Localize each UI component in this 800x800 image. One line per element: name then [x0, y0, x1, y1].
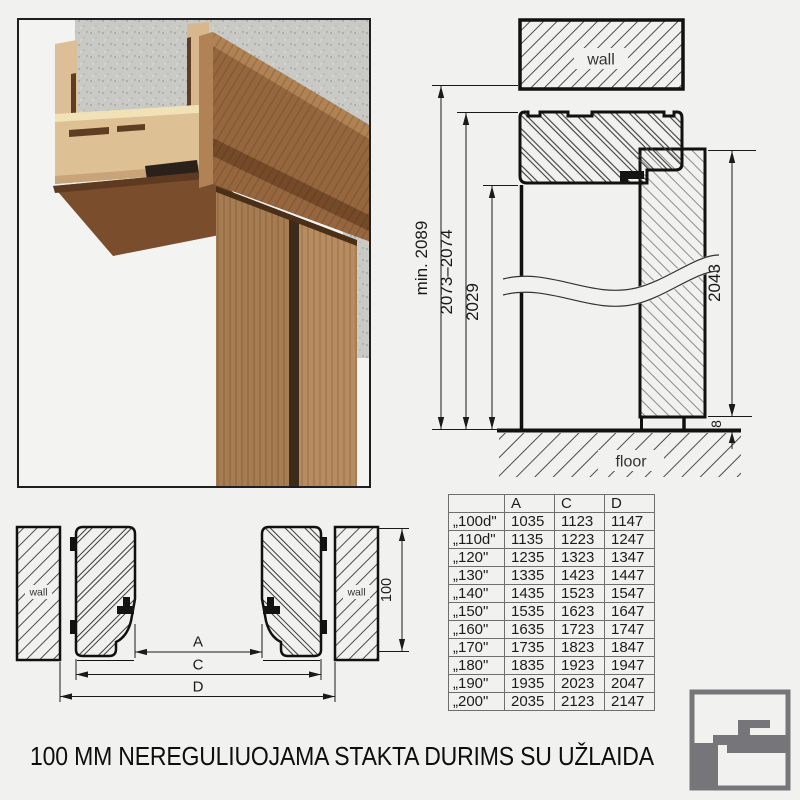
size-name-cell: „150" [449, 603, 505, 621]
dim-opening-height: 2029 [463, 283, 482, 321]
dim-floor-gap: 8 [708, 420, 724, 428]
table-header-cell: D [605, 495, 655, 513]
jamb-tab [70, 537, 76, 551]
dim-d-label: D [193, 678, 204, 695]
size-value-cell: 2023 [555, 675, 605, 693]
size-value-cell: 1923 [555, 657, 605, 675]
dim-total-height: min. 2089 [412, 221, 431, 296]
dim-door-height: 2043 [705, 264, 724, 302]
table-row: „140"143515231547 [449, 585, 655, 603]
table-header-cell [449, 495, 505, 513]
size-name-cell: „130" [449, 567, 505, 585]
size-value-cell: 1535 [505, 603, 555, 621]
table-row: „190"193520232047 [449, 675, 655, 693]
size-value-cell: 1223 [555, 531, 605, 549]
size-value-cell: 1135 [505, 531, 555, 549]
size-value-cell: 1847 [605, 639, 655, 657]
size-value-cell: 1435 [505, 585, 555, 603]
spec-sheet-drawing: wall floor [0, 0, 800, 800]
dim-c-label: C [193, 656, 204, 673]
page-title: 100 MM NEREGULIUOJAMA STAKTA DURIMS SU U… [30, 741, 654, 772]
mdf-slot [187, 37, 191, 106]
logo-profile-bar [713, 735, 790, 753]
size-name-cell: „120" [449, 549, 505, 567]
jamb-seal-cap [117, 606, 134, 614]
table-row: „180"183519231947 [449, 657, 655, 675]
table-row: „110d"113512231247 [449, 531, 655, 549]
jamb-grain [216, 186, 289, 488]
size-value-cell: 1335 [505, 567, 555, 585]
size-value-cell: 2035 [505, 693, 555, 711]
size-value-cell: 1747 [605, 621, 655, 639]
table-row: „170"173518231847 [449, 639, 655, 657]
size-name-cell: „180" [449, 657, 505, 675]
size-value-cell: 1247 [605, 531, 655, 549]
logo-profile-step [738, 720, 770, 736]
product-photo [17, 18, 371, 488]
size-table-body: „100d"103511231147„110d"113512231247„120… [449, 513, 655, 711]
vertical-section: wall floor [412, 20, 756, 477]
beam-end-grain [199, 32, 213, 188]
size-name-cell: „160" [449, 621, 505, 639]
head-seal [620, 171, 644, 179]
table-header-row: ACD [449, 495, 655, 513]
size-value-cell: 2147 [605, 693, 655, 711]
size-name-cell: „170" [449, 639, 505, 657]
floor-label: floor [615, 454, 647, 471]
size-value-cell: 1123 [555, 513, 605, 531]
size-value-cell: 1423 [555, 567, 605, 585]
frame-jamb-left [70, 527, 135, 661]
size-value-cell: 1835 [505, 657, 555, 675]
size-name-cell: „110d" [449, 531, 505, 549]
dim-frame-height: 2073–2074 [437, 229, 456, 314]
table-header-cell: A [505, 495, 555, 513]
logo-block [690, 743, 718, 790]
head-seal-lip [620, 178, 628, 184]
table-row: „120"123513231347 [449, 549, 655, 567]
size-value-cell: 1547 [605, 585, 655, 603]
horizontal-section: wall wall [17, 527, 409, 702]
dim-a-label: A [193, 633, 203, 650]
size-value-cell: 1735 [505, 639, 555, 657]
brand-logo [690, 692, 790, 790]
size-value-cell: 1147 [605, 513, 655, 531]
size-name-cell: „140" [449, 585, 505, 603]
size-value-cell: 1935 [505, 675, 555, 693]
size-name-cell: „200" [449, 693, 505, 711]
size-value-cell: 1947 [605, 657, 655, 675]
frame-jamb-right [262, 527, 327, 661]
table-row: „160"163517231747 [449, 621, 655, 639]
size-value-cell: 1323 [555, 549, 605, 567]
size-value-cell: 1623 [555, 603, 605, 621]
size-value-cell: 1635 [505, 621, 555, 639]
table-header-cell: C [555, 495, 605, 513]
size-table: ACD „100d"103511231147„110d"113512231247… [448, 494, 655, 711]
dim-depth-label: 100 [379, 578, 395, 602]
wall-label-right: wall [346, 587, 365, 599]
size-value-cell: 2047 [605, 675, 655, 693]
size-value-cell: 1035 [505, 513, 555, 531]
size-value-cell: 2123 [555, 693, 605, 711]
size-value-cell: 1823 [555, 639, 605, 657]
table-row: „150"153516231647 [449, 603, 655, 621]
size-value-cell: 1347 [605, 549, 655, 567]
table-row: „130"133514231447 [449, 567, 655, 585]
table-row: „200"203521232147 [449, 693, 655, 711]
size-value-cell: 1647 [605, 603, 655, 621]
wall-label: wall [586, 52, 615, 69]
jamb-seal-stem [123, 597, 130, 607]
table-row: „100d"103511231147 [449, 513, 655, 531]
size-name-cell: „100d" [449, 513, 505, 531]
wall-label-left: wall [28, 587, 47, 599]
size-name-cell: „190" [449, 675, 505, 693]
size-value-cell: 1235 [505, 549, 555, 567]
size-value-cell: 1523 [555, 585, 605, 603]
size-value-cell: 1723 [555, 621, 605, 639]
jamb-tab [70, 620, 76, 634]
size-table-header: ACD [449, 495, 655, 513]
jamb-seal-groove [289, 214, 299, 488]
size-value-cell: 1447 [605, 567, 655, 585]
jamb-grain [299, 218, 357, 488]
